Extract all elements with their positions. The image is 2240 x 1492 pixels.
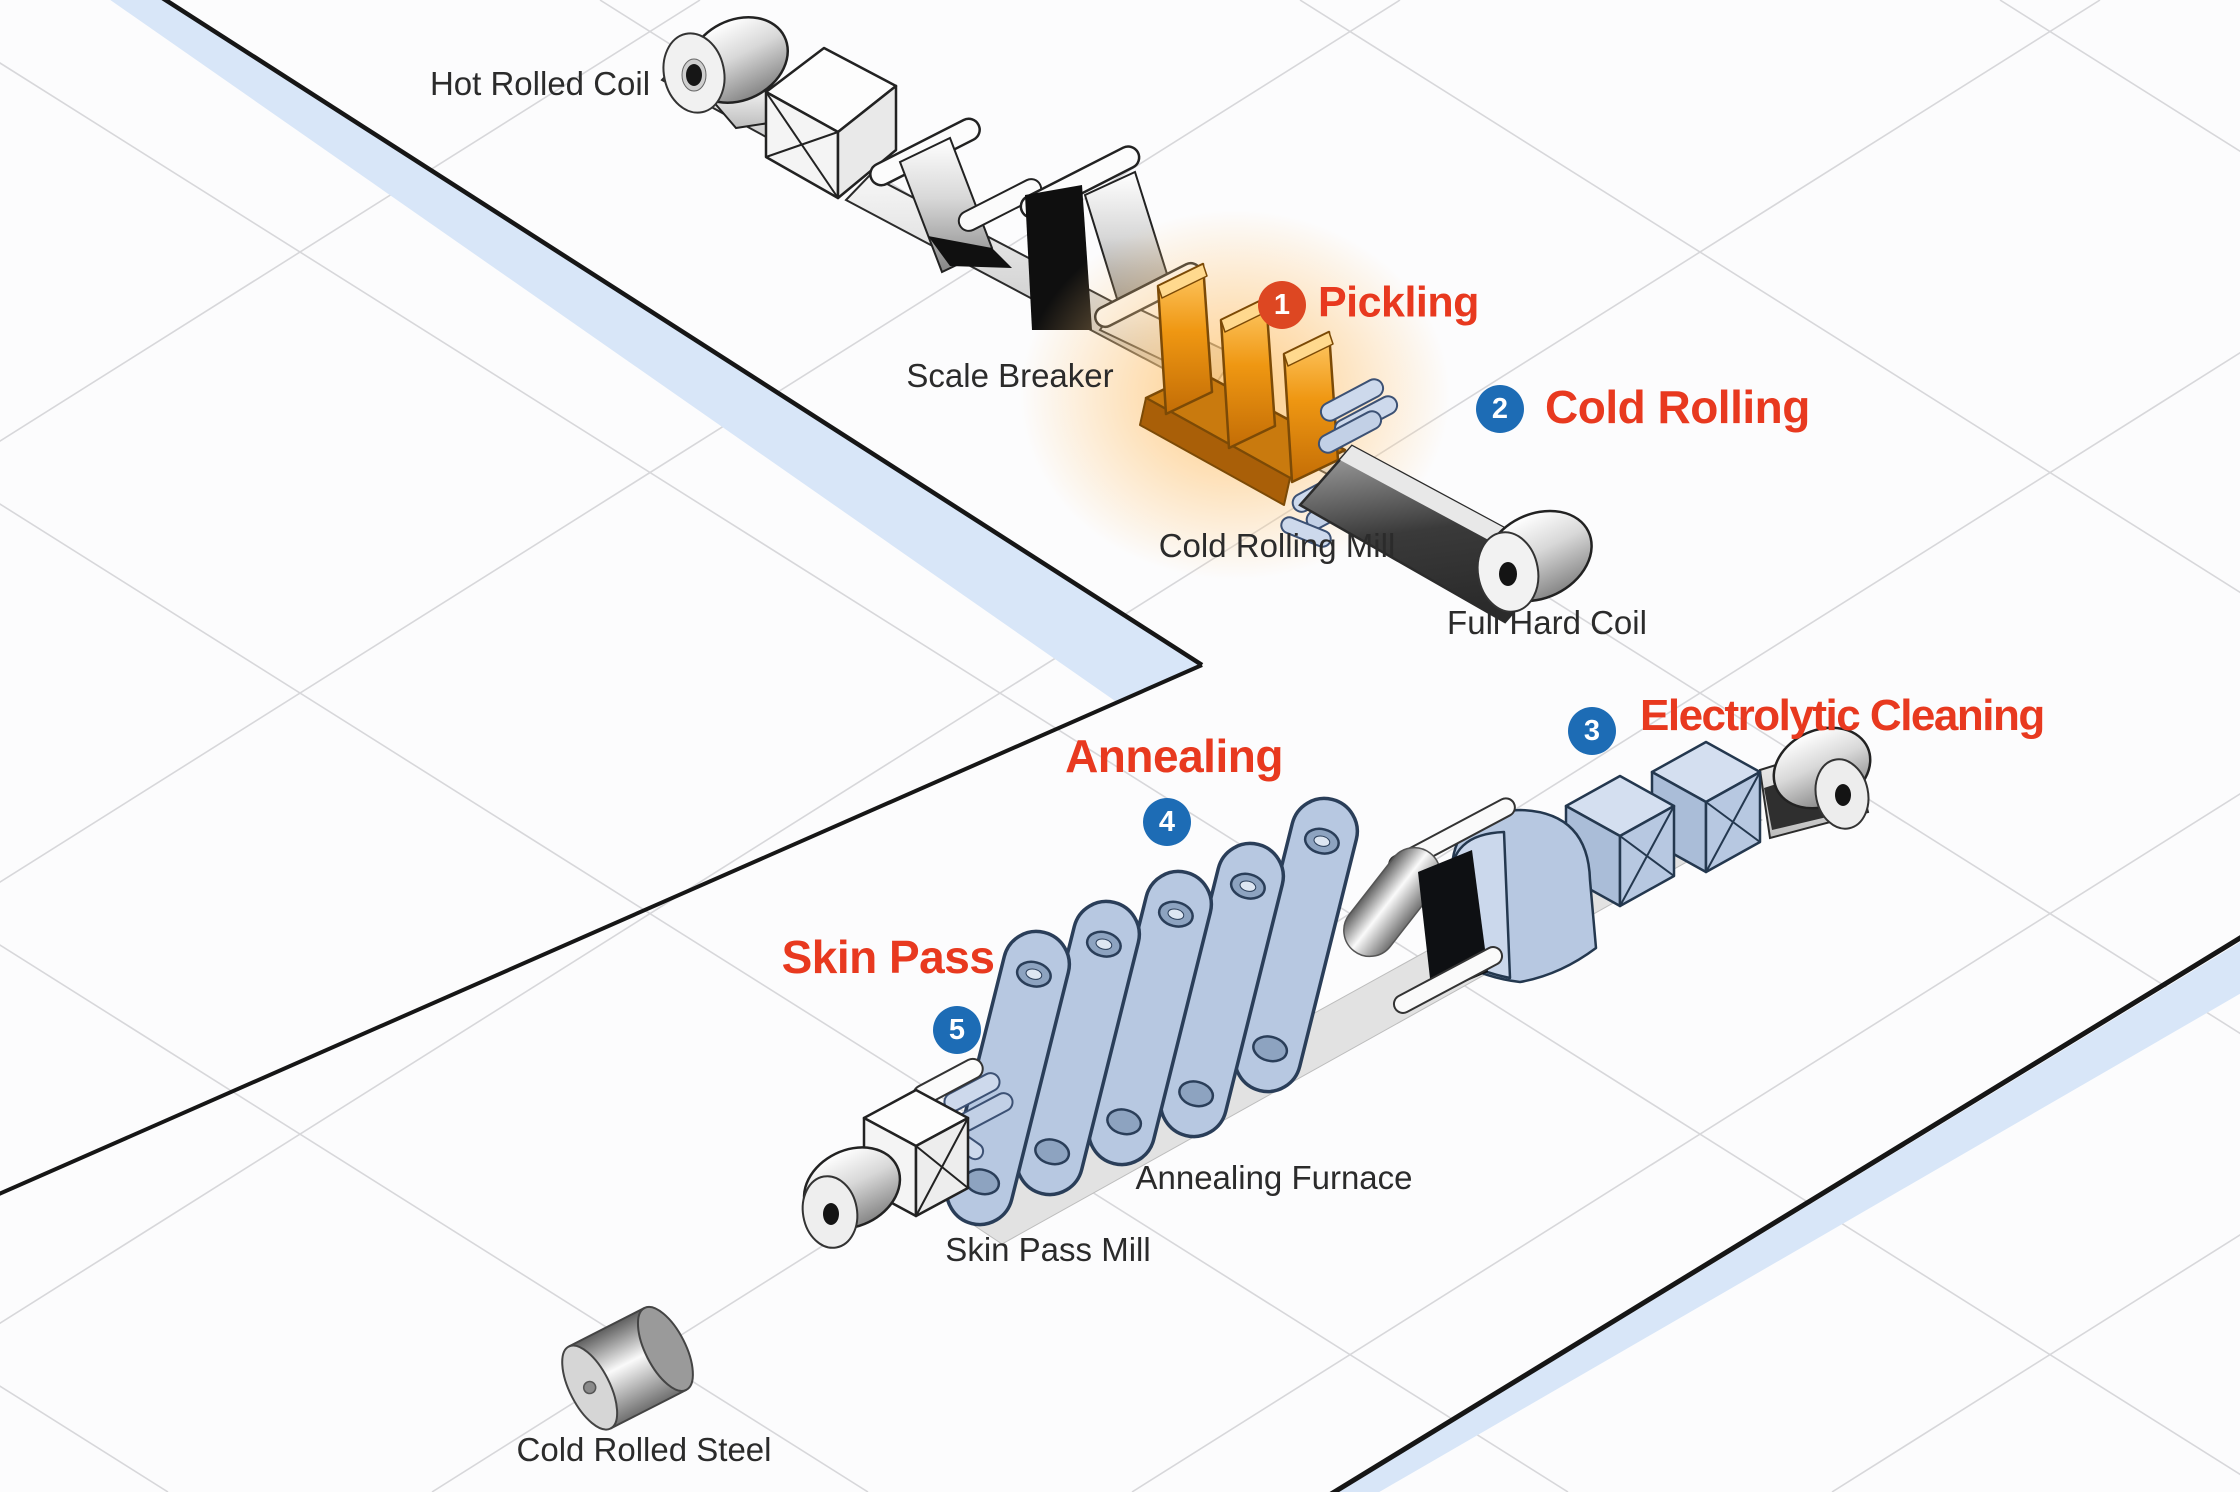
step-3-label: Electrolytic Cleaning bbox=[1640, 691, 2044, 741]
step-2-label: Cold Rolling bbox=[1545, 380, 1810, 434]
steel-process-diagram: 1 2 3 4 5 Pickling Cold Rolling Electrol… bbox=[0, 0, 2240, 1492]
full-hard-coil-label: Full Hard Coil bbox=[1447, 604, 1647, 642]
skin-pass-mill-label: Skin Pass Mill bbox=[945, 1231, 1150, 1269]
step-4-label: Annealing bbox=[1065, 729, 1283, 783]
step-1-label: Pickling bbox=[1318, 279, 1479, 328]
step-4-badge: 4 bbox=[1143, 798, 1191, 846]
annealing-furnace-label: Annealing Furnace bbox=[1135, 1159, 1412, 1197]
cold-rolling-mill-label: Cold Rolling Mill bbox=[1159, 527, 1396, 565]
step-1-badge: 1 bbox=[1258, 281, 1306, 329]
cold-rolled-steel-label: Cold Rolled Steel bbox=[517, 1431, 772, 1469]
step-5-label: Skin Pass bbox=[782, 930, 995, 984]
step-2-badge: 2 bbox=[1476, 385, 1524, 433]
step-5-badge: 5 bbox=[933, 1006, 981, 1054]
hot-rolled-coil-label: Hot Rolled Coil bbox=[430, 65, 650, 103]
scale-breaker-label: Scale Breaker bbox=[906, 357, 1113, 395]
step-3-badge: 3 bbox=[1568, 707, 1616, 755]
